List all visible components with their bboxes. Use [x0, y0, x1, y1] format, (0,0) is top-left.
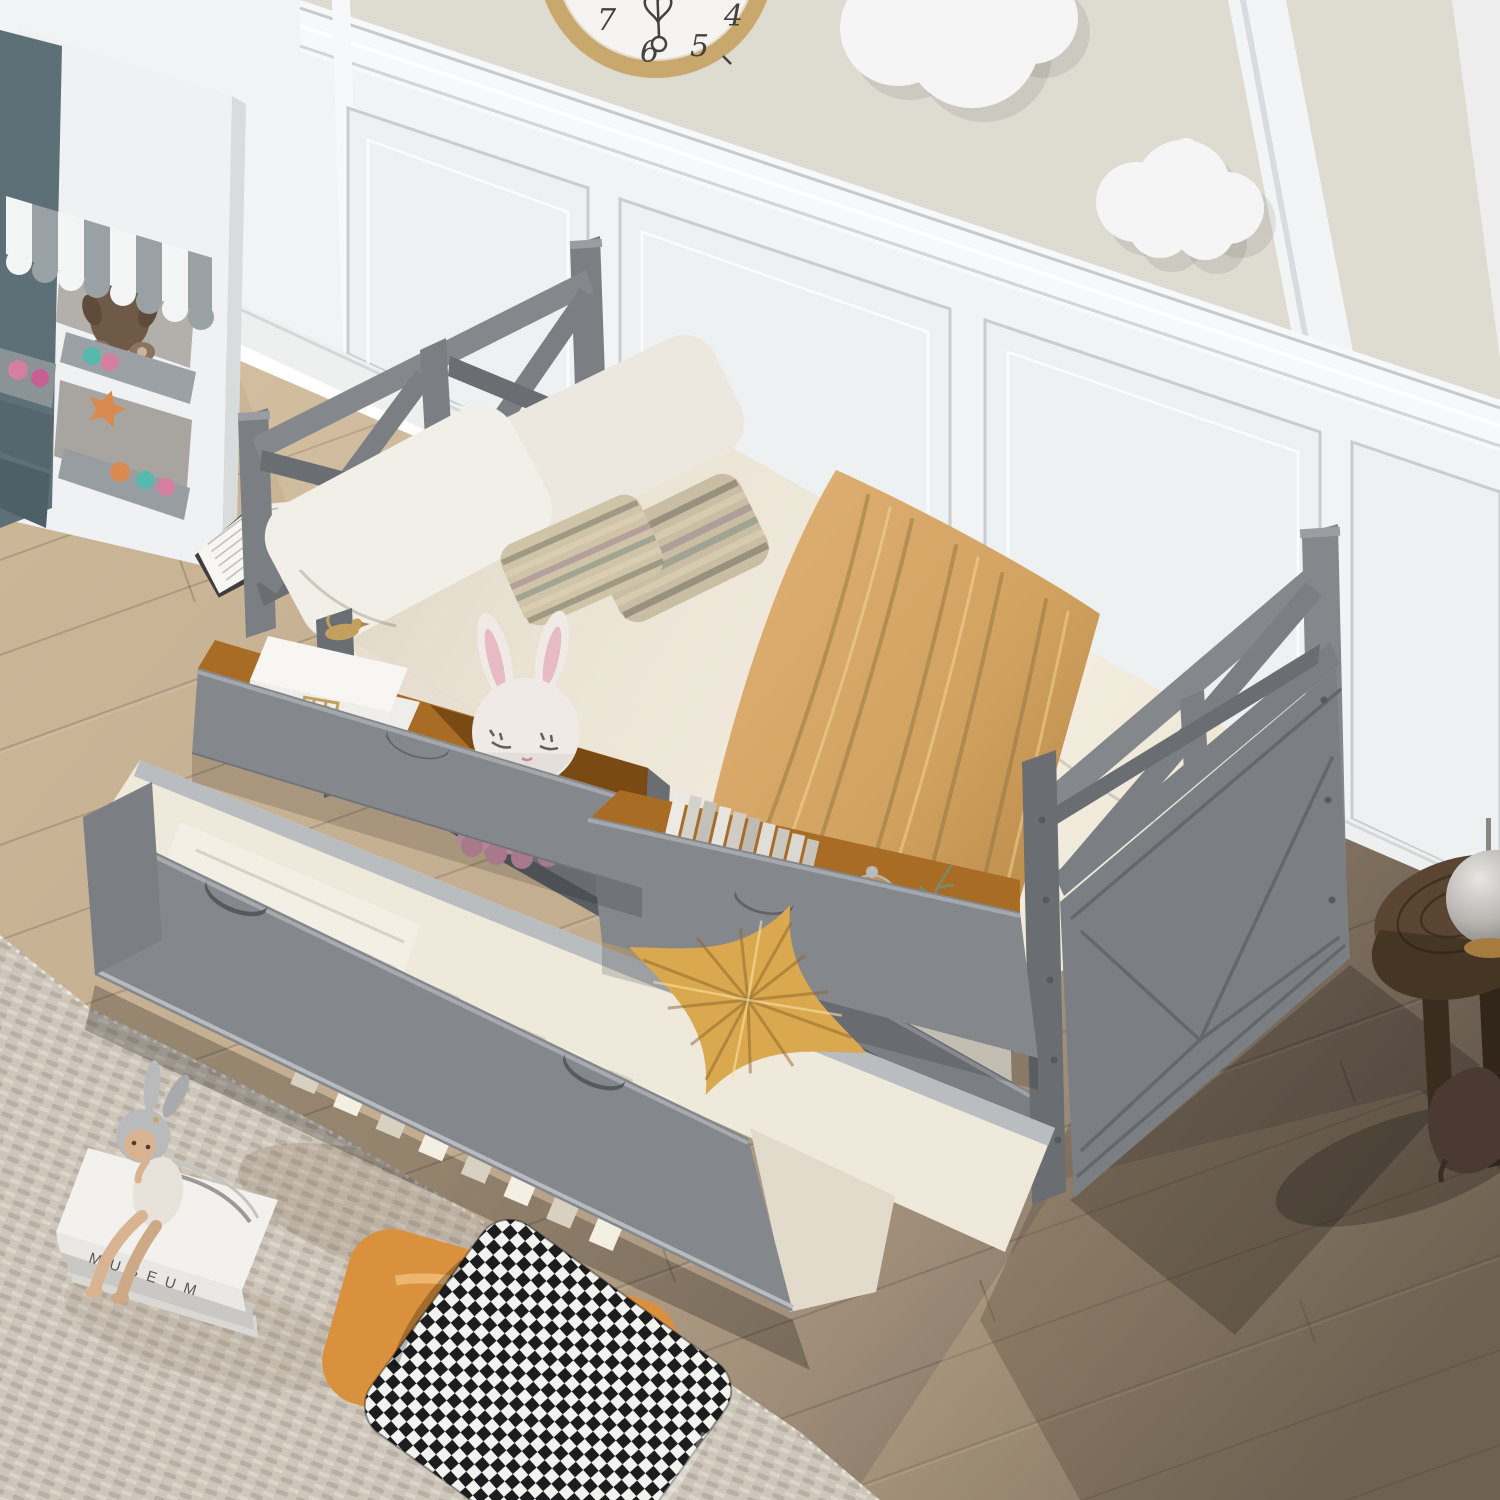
toy-shelf	[0, 28, 246, 572]
clock-numeral-7: 7	[597, 3, 617, 38]
wainscot-panel	[1352, 442, 1500, 888]
clock-numeral-5: 5	[690, 29, 709, 64]
bedroom-product-photo: 7 6 5 4	[0, 0, 1500, 1500]
clock-numeral-4: 4	[723, 0, 743, 34]
figurine-face	[124, 1129, 156, 1161]
scene-canvas: 7 6 5 4	[0, 0, 1500, 1500]
